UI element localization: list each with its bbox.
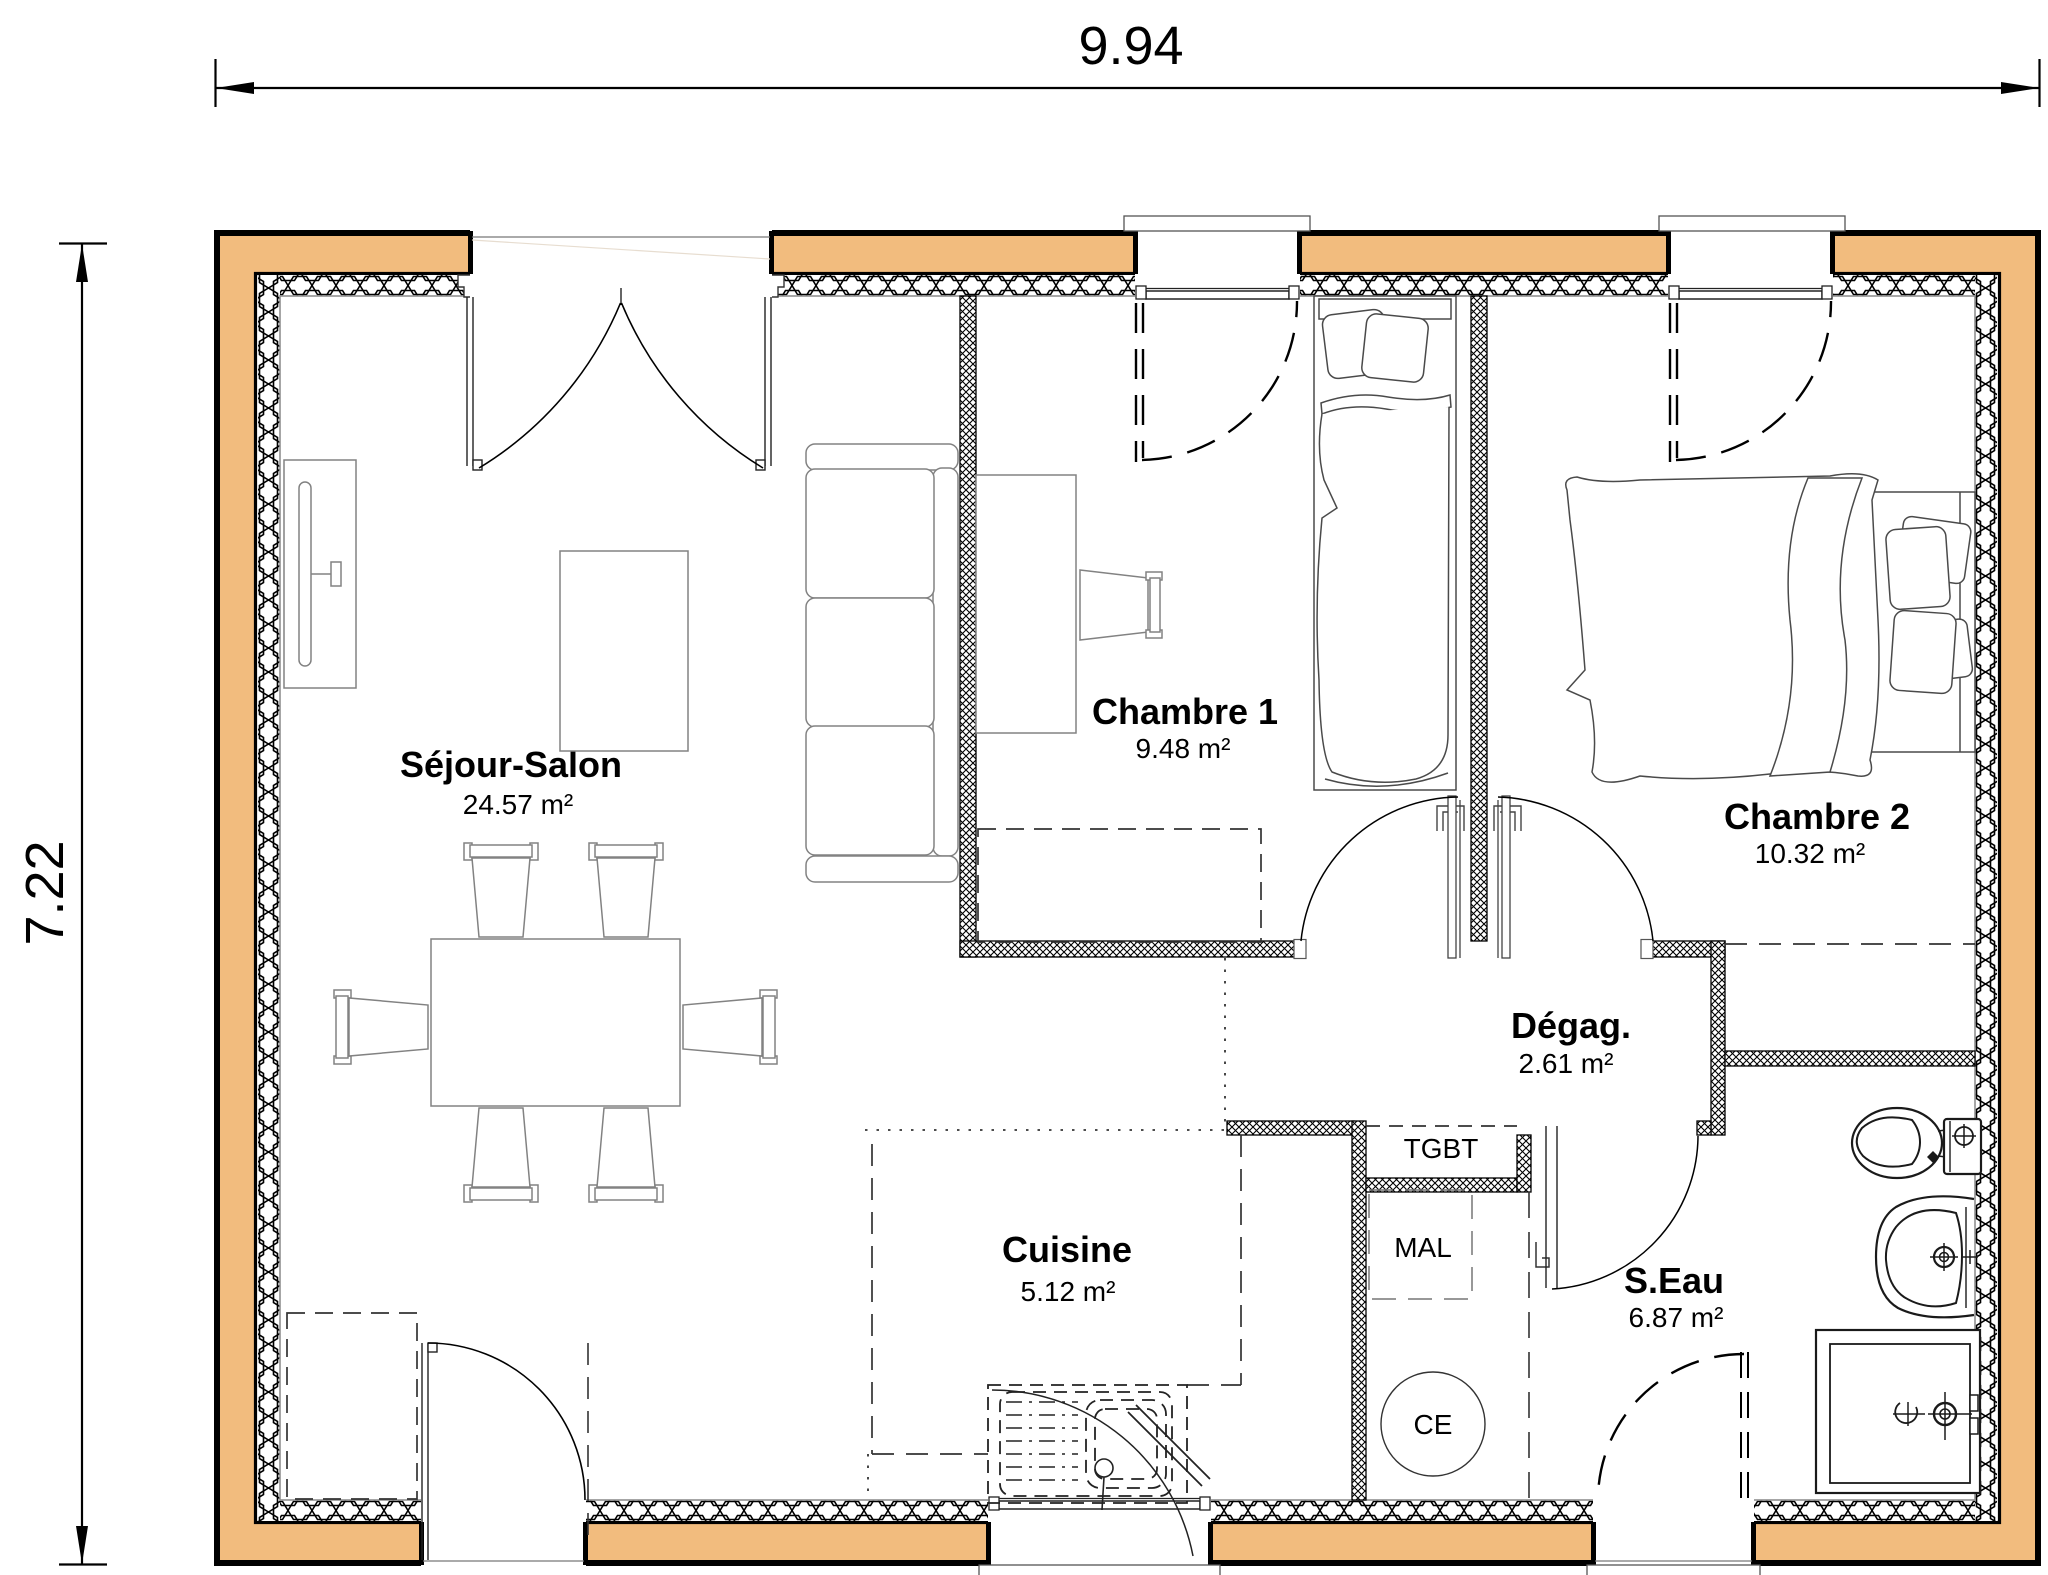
svg-text:5.12 m²: 5.12 m² (1021, 1276, 1116, 1307)
svg-text:9.94: 9.94 (1078, 16, 1183, 76)
svg-text:CE: CE (1414, 1409, 1453, 1440)
svg-text:10.32 m²: 10.32 m² (1755, 838, 1866, 869)
svg-text:7.22: 7.22 (15, 840, 75, 945)
svg-text:6.87 m²: 6.87 m² (1629, 1302, 1724, 1333)
svg-text:Chambre 1: Chambre 1 (1092, 691, 1278, 732)
svg-text:9.48 m²: 9.48 m² (1136, 733, 1231, 764)
svg-text:Cuisine: Cuisine (1002, 1229, 1132, 1270)
svg-text:2.61 m²: 2.61 m² (1519, 1048, 1614, 1079)
svg-text:24.57 m²: 24.57 m² (463, 789, 574, 820)
svg-text:MAL: MAL (1394, 1232, 1452, 1263)
svg-text:Dégag.: Dégag. (1511, 1005, 1631, 1046)
svg-text:Chambre 2: Chambre 2 (1724, 796, 1910, 837)
svg-text:TGBT: TGBT (1404, 1133, 1479, 1164)
svg-text:S.Eau: S.Eau (1624, 1260, 1724, 1301)
